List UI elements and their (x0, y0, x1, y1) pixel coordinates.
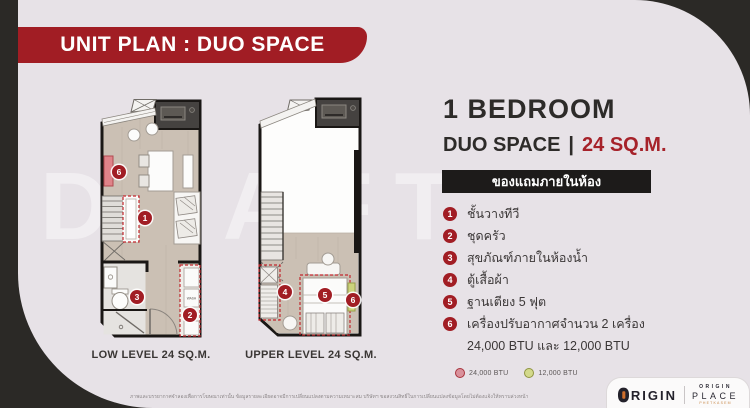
btu-dot-label: 24,000 BTU (469, 370, 508, 377)
legend-item: 3 สุขภัณฑ์ภายในห้องน้ำ (443, 251, 733, 265)
plan-marker: 4 (278, 285, 292, 299)
plan-marker: 6 (112, 165, 126, 179)
low-level-label: LOW LEVEL 24 SQ.M. (61, 349, 241, 361)
title-banner: UNIT PLAN : DUO SPACE (18, 27, 367, 63)
legend-item-number: 5 (443, 295, 457, 309)
plan-marker-number: 6 (351, 295, 356, 305)
legend-item-label: ฐานเตียง 5 ฟุต (467, 295, 546, 309)
plan-marker-number: 1 (143, 213, 148, 223)
plan-marker-number: 2 (188, 310, 193, 320)
poster-panel: UNIT PLAN : DUO SPACE DRAFT (18, 0, 750, 408)
legal-disclaimer: ภาพและบรรยากาศจำลองเพื่อการโฆษณาเท่านั้น… (130, 393, 550, 401)
developer-logo-box: RIGIN ORIGIN PLACE PHETKASEM (606, 377, 750, 408)
legend-item: 1 ชั้นวางทีวี (443, 207, 733, 221)
legend-item-number: 6 (443, 317, 457, 331)
project-logo: ORIGIN PLACE PHETKASEM (692, 385, 739, 405)
legend-item-label: ตู้เสื้อผ้า (467, 273, 509, 287)
legend-item: 5 ฐานเตียง 5 ฟุต (443, 295, 733, 309)
btu-dot-item: 12,000 BTU (524, 368, 577, 378)
legend-item-number: 1 (443, 207, 457, 221)
btu-dot-icon (455, 368, 465, 378)
plan-marker-number: 3 (135, 292, 140, 302)
page-title: UNIT PLAN : DUO SPACE (60, 33, 324, 57)
freebies-header-text: ของแถมภายในห้อง (492, 171, 601, 192)
project-name-line3: PHETKASEM (699, 401, 731, 405)
btu-dot-label: 12,000 BTU (538, 370, 577, 377)
plan-marker: 2 (183, 308, 197, 322)
unit-plan-name: DUO SPACE (443, 134, 560, 157)
plan-marker: 1 (138, 211, 152, 225)
project-name-line2: PLACE (692, 391, 739, 401)
origin-logo-icon (617, 387, 630, 403)
plan-marker-number: 5 (323, 290, 328, 300)
btu-dot-legend: 24,000 BTU 12,000 BTU (455, 368, 578, 378)
freebies-legend: 1 ชั้นวางทีวี 2 ชุดครัว 3 (443, 207, 733, 361)
legend-item-number: 4 (443, 273, 457, 287)
upper-level-label: UPPER LEVEL 24 SQ.M. (221, 349, 401, 361)
unit-type-title: 1 BEDROOM (443, 94, 616, 125)
plan-marker-number: 4 (283, 287, 288, 297)
btu-dot-item: 24,000 BTU (455, 368, 508, 378)
subtitle-divider: | (568, 134, 574, 157)
origin-brand: RIGIN (617, 387, 677, 403)
freebies-header-bar: ของแถมภายในห้อง (442, 170, 651, 193)
plan-marker: 5 (318, 288, 332, 302)
plan-marker-number: 6 (117, 167, 122, 177)
legend-item: 6 เครื่องปรับอากาศจำนวน 2 เครื่อง 24,000… (443, 317, 733, 353)
legend-item-label: ชุดครัว (467, 229, 506, 243)
btu-dot-icon (524, 368, 534, 378)
wash-label: WASH (187, 297, 197, 301)
legend-item: 2 ชุดครัว (443, 229, 733, 243)
unit-subtitle: DUO SPACE | 24 SQ.M. (443, 134, 667, 157)
logo-divider (684, 386, 685, 404)
plan-marker: 3 (130, 290, 144, 304)
legend-item-number: 2 (443, 229, 457, 243)
legend-item-label: ชั้นวางทีวี (467, 207, 519, 221)
legend-item-label: สุขภัณฑ์ภายในห้องน้ำ (467, 251, 588, 265)
legend-item: 4 ตู้เสื้อผ้า (443, 273, 733, 287)
origin-brand-name: RIGIN (631, 388, 677, 403)
legend-item-number: 3 (443, 251, 457, 265)
legend-item-label: เครื่องปรับอากาศจำนวน 2 เครื่อง 24,000 B… (467, 317, 645, 353)
unit-area: 24 SQ.M. (582, 134, 666, 157)
plan-marker: 6 (346, 293, 360, 307)
